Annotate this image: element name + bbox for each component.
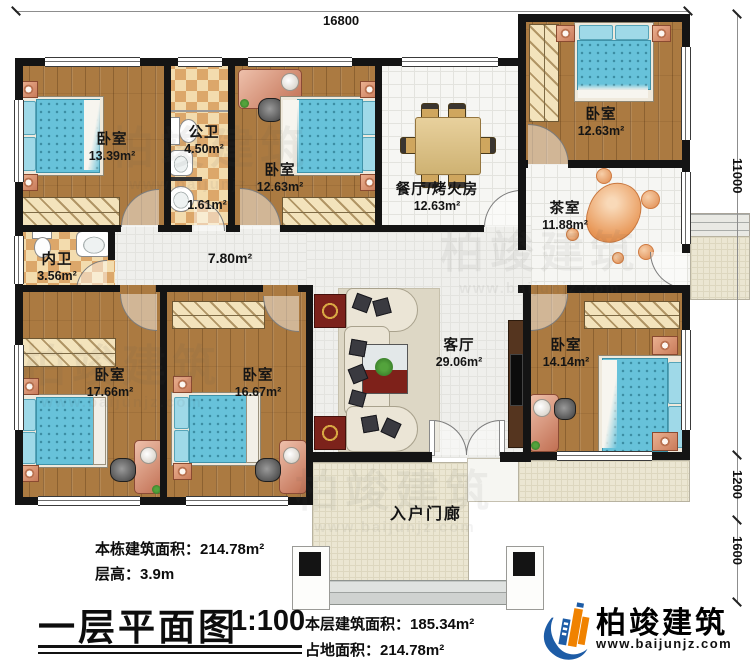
wardrobe [282,197,378,226]
desk-lamp-icon [281,73,299,91]
wall [222,58,248,66]
room-label-bedroom-tr: 卧室 12.63m² [578,107,625,139]
sofa-pillow [349,339,368,358]
window [178,57,222,67]
wall [500,452,531,462]
window [38,496,140,506]
wall [15,58,23,100]
room-label-vestibule: 1.61m² [187,198,227,213]
wall [158,225,192,232]
wall [682,430,690,460]
wall [15,284,23,345]
porch-steps [316,580,536,605]
room-label-bedroom-bl: 卧室 17.66m² [87,368,134,400]
duvet-fold [602,360,617,448]
entry-door-leaf [429,420,435,456]
wall [375,58,382,225]
duvet-fold [283,100,299,170]
pillow [579,25,613,40]
nightstand [173,376,192,393]
porch-column [300,552,321,575]
wall [518,14,690,22]
duvet-fold [578,84,648,98]
porch-column [514,552,535,575]
wall [228,58,235,225]
footboard [246,395,259,463]
window [681,330,691,430]
room-label-living-room: 客厅 29.06m² [436,338,483,370]
wall [15,430,23,505]
dimension-right-mid: 1200 [730,470,745,499]
brand-logo-icon [538,596,590,660]
wall [567,285,690,293]
window [186,496,288,506]
mattress [189,395,247,463]
pillow [21,432,36,464]
title-underline [38,645,302,654]
plan-scale: 1:100 [231,605,305,638]
mattress [577,40,651,90]
chair [554,398,576,420]
wall [682,287,690,330]
room-label-bedroom-tl: 卧室 13.39m² [89,132,136,164]
wall [518,285,531,293]
wall [306,452,432,462]
side-table [314,294,346,328]
landscape-stone [612,252,624,264]
tv-icon [510,354,523,406]
shower-partition [170,110,228,112]
mattress [36,397,94,465]
plant-icon [375,358,393,376]
room-label-tea-room: 茶室 11.88m² [542,201,588,233]
nightstand [652,25,671,42]
floor-plan: 卧室 13.39m² 公卫 4.50m² 1.61m² 卧室 12.63m² 餐… [0,0,750,665]
brand-website: www.baijunjz.com [596,636,732,651]
desk-lamp-icon [283,447,300,464]
dining-table [415,117,481,175]
window [248,57,352,67]
window [14,236,24,284]
wall [568,160,690,168]
wall [531,452,557,460]
wall [523,293,531,452]
pillow [174,430,189,462]
wardrobe [20,338,116,367]
wall [15,225,121,232]
wardrobe [18,197,120,226]
pillow [615,25,649,40]
dimension-line-right [737,14,738,603]
wall [298,285,313,292]
window [402,57,498,67]
wall [518,22,526,250]
window [45,57,140,67]
floor-height: 层高：3.9m [95,563,174,584]
wall [15,285,120,292]
entry-door-leaf [499,420,505,456]
nightstand [652,336,678,355]
floor-side-terrace [690,236,750,300]
window [557,451,652,461]
wall [382,225,484,232]
dimension-right-upper: 11000 [730,158,745,193]
wall [288,497,313,505]
dimension-top: 16800 [323,13,359,28]
wall [160,292,167,497]
wall [15,182,23,236]
floor-area: 本层建筑面积：185.34m² [305,613,474,634]
wall [140,58,178,66]
nightstand [652,432,678,451]
plant-icon [240,99,249,108]
room-label-porch: 入户门廊 [390,505,462,524]
chair [255,458,281,482]
brand-logo-svg [538,596,590,660]
desk-lamp-icon [140,447,157,464]
plant-icon [531,441,540,450]
washbasin-icon [76,231,112,257]
dimension-right-lower: 1600 [730,536,745,565]
wall [140,497,186,505]
wall [226,225,240,232]
landscape-stone [641,190,660,209]
landscape-stone [596,168,612,184]
room-label-bedroom-br: 卧室 14.14m² [543,338,590,370]
window [14,345,24,430]
window [681,172,691,244]
room-label-public-bath: 公卫 4.50m² [184,125,224,157]
window [681,47,691,140]
footboard [93,397,106,465]
chair [110,458,136,482]
wall [280,225,382,232]
wardrobe [529,24,559,122]
room-label-bedroom-bm: 卧室 16.67m² [235,368,282,400]
room-label-hallway: 7.80m² [208,250,252,267]
room-label-bedroom-tm: 卧室 12.63m² [257,163,304,195]
dimension-line-top [15,11,688,12]
floor-porch-right [518,460,690,502]
footprint-area: 占地面积：214.78m² [305,639,444,660]
desk-lamp-icon [533,399,551,417]
wardrobe [172,301,265,329]
pillow [174,397,189,429]
building-total-area: 本栋建筑面积：214.78m² [95,538,264,559]
wall [164,58,171,225]
wall [682,14,690,47]
wall [306,292,313,497]
nightstand [173,463,192,480]
wall [682,140,690,172]
nightstand [556,25,575,42]
mattress [297,99,363,173]
wall [108,232,115,260]
room-label-inner-bath: 内卫 3.56m² [37,252,77,284]
wall [682,244,690,253]
wall [156,285,263,292]
side-table [314,416,346,450]
wardrobe [584,301,680,329]
floor-porch-strip [467,458,520,502]
window [14,100,24,182]
sofa-pillow [361,415,380,434]
room-label-dining: 餐厅/烤火房 12.63m² [396,182,479,214]
bath-partition [168,177,202,181]
plan-title: 一层平面图 [38,597,238,651]
